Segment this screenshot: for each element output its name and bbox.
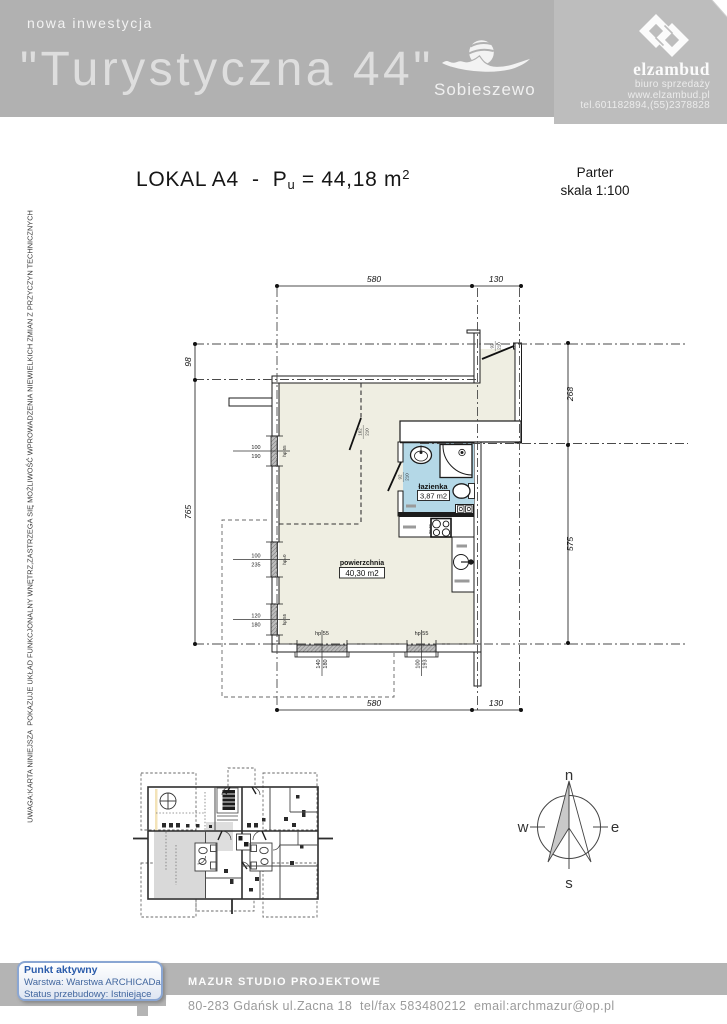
svg-text:hp 55: hp 55 xyxy=(282,445,287,457)
svg-text:210: 210 xyxy=(405,473,410,481)
svg-text:100: 100 xyxy=(251,445,260,451)
svg-text:765: 765 xyxy=(183,505,193,519)
svg-text:162: 162 xyxy=(358,428,363,436)
svg-text:hp 55: hp 55 xyxy=(315,631,329,637)
svg-text:łazienka: łazienka xyxy=(418,482,448,491)
svg-text:268: 268 xyxy=(565,387,575,402)
svg-text:e: e xyxy=(611,819,619,836)
svg-text:100: 100 xyxy=(416,659,422,668)
svg-text:hp 55: hp 55 xyxy=(282,613,287,625)
svg-text:130: 130 xyxy=(489,698,503,708)
svg-text:575: 575 xyxy=(565,537,575,551)
svg-text:3,87 m2: 3,87 m2 xyxy=(420,492,447,501)
svg-text:50x60: 50x60 xyxy=(429,524,433,534)
svg-text:190: 190 xyxy=(251,454,260,460)
svg-text:193: 193 xyxy=(423,659,429,668)
svg-text:w: w xyxy=(517,819,529,836)
svg-text:580: 580 xyxy=(367,274,381,284)
svg-text:92: 92 xyxy=(398,474,403,480)
svg-text:98: 98 xyxy=(183,357,193,367)
svg-text:180: 180 xyxy=(251,623,260,629)
svg-text:100: 100 xyxy=(251,554,260,560)
svg-text:580: 580 xyxy=(367,698,381,708)
svg-text:hp=0: hp=0 xyxy=(282,554,287,565)
svg-text:140: 140 xyxy=(316,659,322,668)
svg-text:130: 130 xyxy=(489,274,503,284)
svg-text:powierzchnia: powierzchnia xyxy=(340,560,384,567)
svg-text:120: 120 xyxy=(251,614,260,620)
svg-text:210: 210 xyxy=(497,342,502,350)
svg-text:210: 210 xyxy=(365,428,370,436)
svg-text:235: 235 xyxy=(251,563,260,569)
svg-text:hp 55: hp 55 xyxy=(415,631,429,637)
svg-text:n: n xyxy=(565,767,573,784)
svg-text:40,30 m2: 40,30 m2 xyxy=(345,569,379,578)
svg-text:s: s xyxy=(565,875,573,892)
svg-text:180: 180 xyxy=(323,659,329,668)
